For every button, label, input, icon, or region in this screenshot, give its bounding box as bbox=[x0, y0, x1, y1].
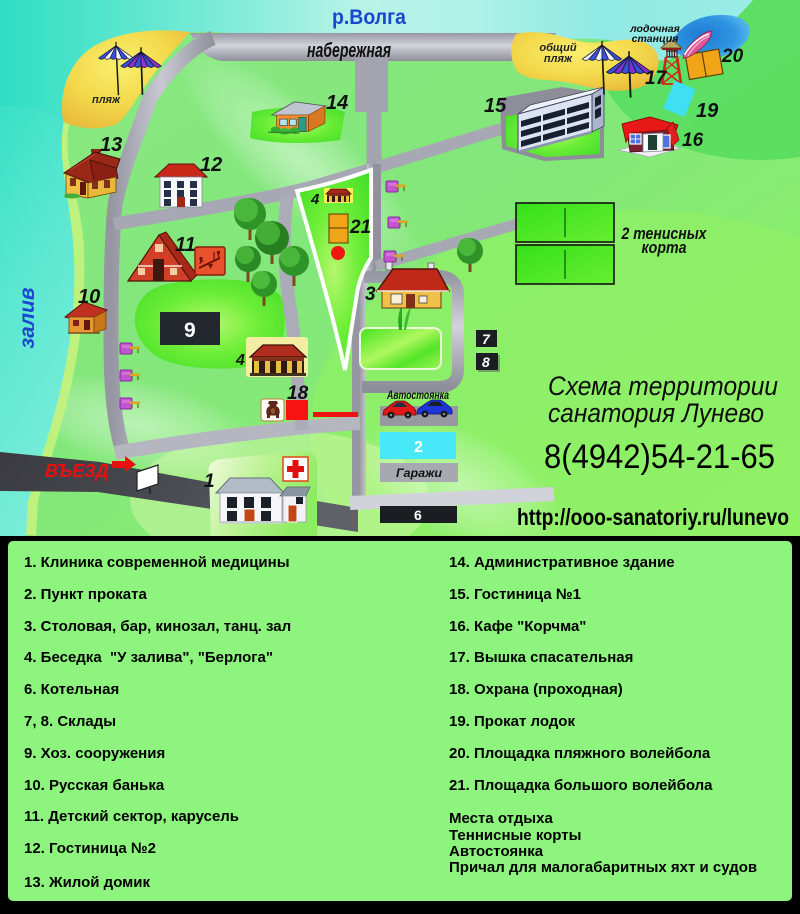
svg-text:17: 17 bbox=[645, 68, 668, 89]
svg-text:6: 6 bbox=[414, 507, 422, 523]
svg-text:7: 7 bbox=[482, 331, 491, 347]
svg-text:станция: станция bbox=[632, 33, 679, 45]
svg-text:20: 20 bbox=[721, 46, 744, 67]
svg-text:Гаражи: Гаражи bbox=[396, 466, 443, 480]
svg-text:18: 18 bbox=[287, 383, 309, 404]
svg-text:11: 11 bbox=[175, 234, 196, 256]
svg-text:19: 19 bbox=[696, 100, 719, 122]
svg-text:8(4942)54-21-65: 8(4942)54-21-65 bbox=[544, 438, 775, 476]
svg-text:р.Волга: р.Волга bbox=[332, 6, 406, 29]
svg-text:8: 8 bbox=[482, 354, 490, 370]
svg-text:набережная: набережная bbox=[307, 40, 391, 62]
svg-text:16: 16 bbox=[682, 130, 704, 151]
svg-text:Автостоянка: Автостоянка bbox=[386, 390, 449, 402]
svg-text:13: 13 bbox=[100, 134, 122, 156]
svg-text:корта: корта bbox=[642, 238, 687, 257]
svg-text:2: 2 bbox=[414, 439, 423, 456]
svg-text:9: 9 bbox=[184, 319, 196, 342]
svg-text:15: 15 bbox=[484, 95, 507, 117]
svg-text:http://ooo-sanatoriy.ru/lunevo: http://ooo-sanatoriy.ru/lunevo bbox=[517, 504, 789, 530]
svg-text:пляж: пляж bbox=[92, 94, 121, 106]
svg-text:1: 1 bbox=[204, 471, 215, 492]
svg-text:12: 12 bbox=[200, 154, 222, 176]
svg-text:10: 10 bbox=[78, 286, 100, 308]
svg-text:Схема территории: Схема территории bbox=[548, 371, 778, 401]
svg-text:ВЪЕЗД: ВЪЕЗД bbox=[45, 461, 109, 481]
svg-text:санатория Лунево: санатория Лунево bbox=[548, 398, 764, 428]
svg-text:14: 14 bbox=[326, 92, 348, 114]
svg-text:3: 3 bbox=[365, 284, 376, 305]
svg-text:4: 4 bbox=[235, 352, 245, 369]
svg-text:залив: залив bbox=[16, 287, 39, 349]
svg-text:пляж: пляж bbox=[544, 53, 573, 65]
svg-text:4: 4 bbox=[310, 191, 320, 208]
svg-text:21: 21 bbox=[349, 217, 371, 238]
